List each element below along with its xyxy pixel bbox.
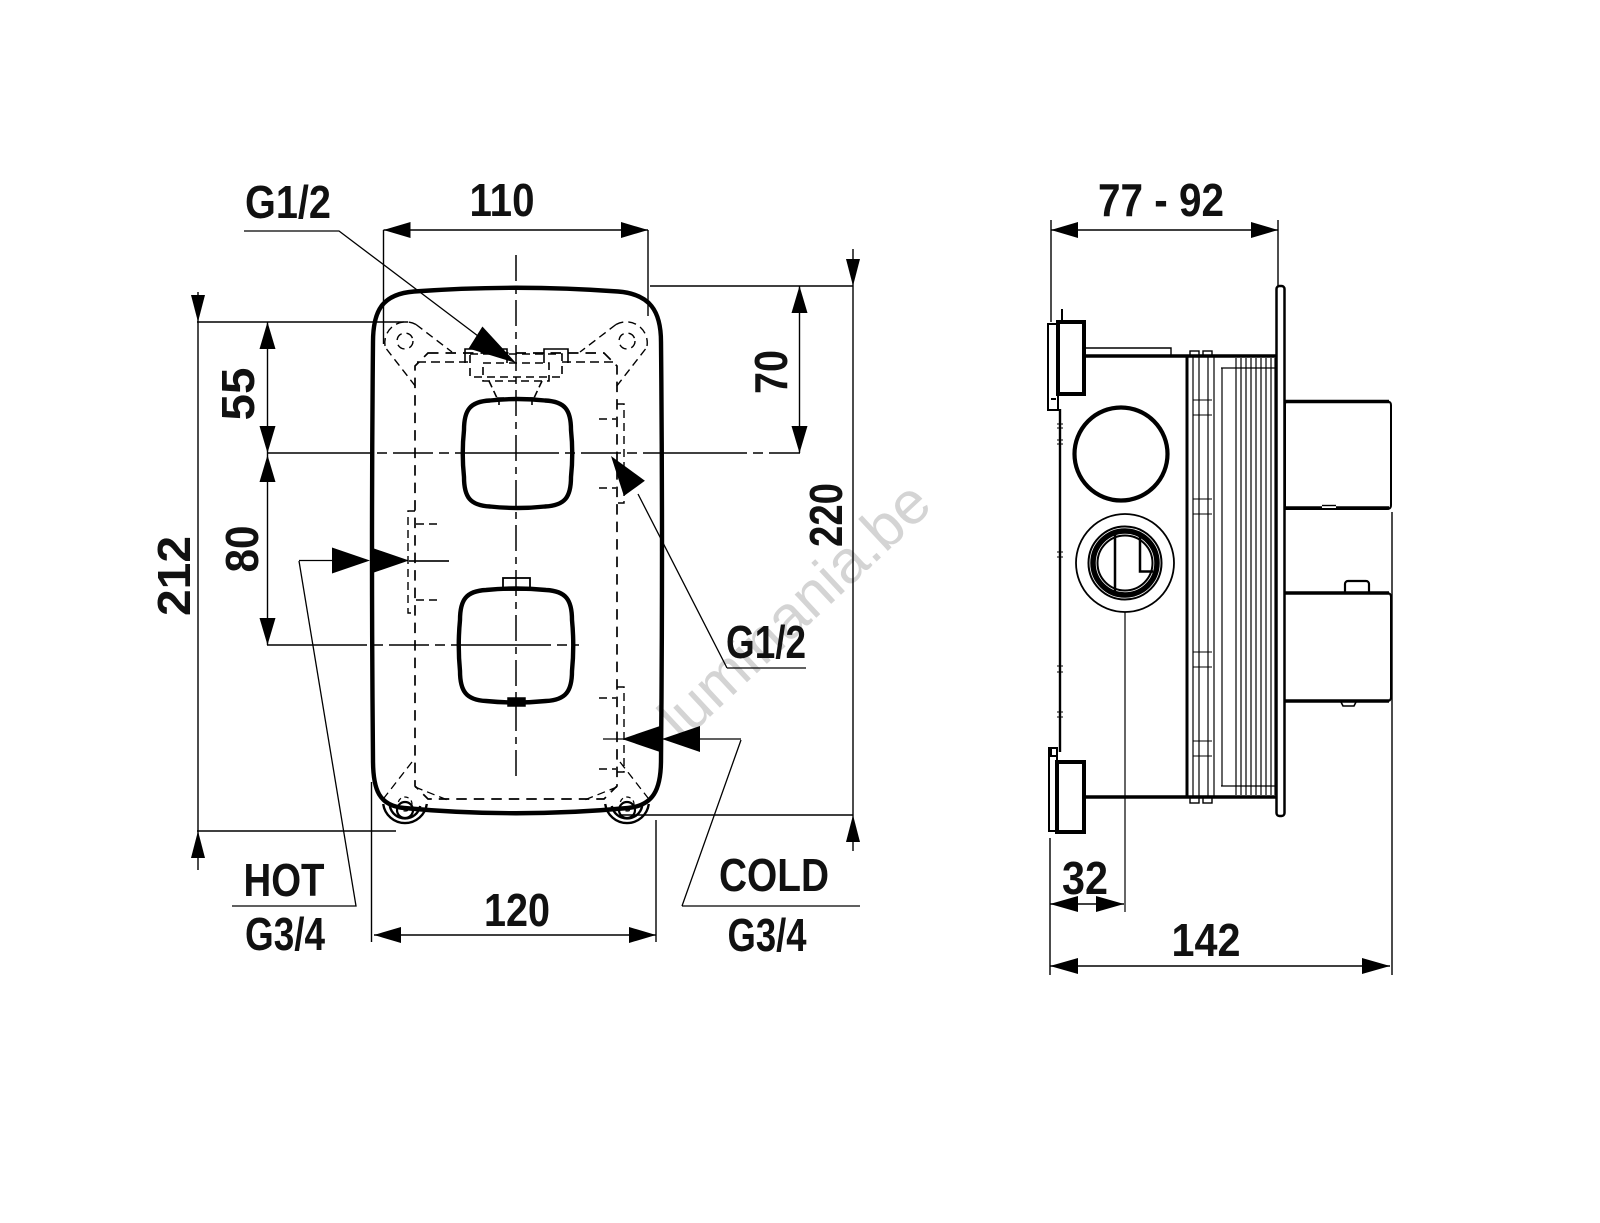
svg-text:HOT: HOT: [244, 854, 325, 906]
svg-text:G3/4: G3/4: [245, 908, 325, 960]
svg-text:G3/4: G3/4: [728, 909, 807, 961]
svg-text:212: 212: [148, 536, 200, 616]
svg-text:110: 110: [470, 174, 535, 226]
svg-text:32: 32: [1062, 852, 1108, 904]
svg-text:70: 70: [745, 350, 797, 394]
svg-text:77 - 92: 77 - 92: [1098, 174, 1224, 226]
svg-text:80: 80: [216, 526, 268, 573]
svg-text:220: 220: [800, 483, 852, 547]
svg-text:55: 55: [212, 368, 264, 421]
svg-text:120: 120: [484, 884, 550, 936]
svg-text:G1/2: G1/2: [726, 616, 806, 668]
svg-text:G1/2: G1/2: [245, 176, 331, 228]
svg-text:COLD: COLD: [719, 849, 829, 901]
svg-text:142: 142: [1172, 914, 1241, 966]
